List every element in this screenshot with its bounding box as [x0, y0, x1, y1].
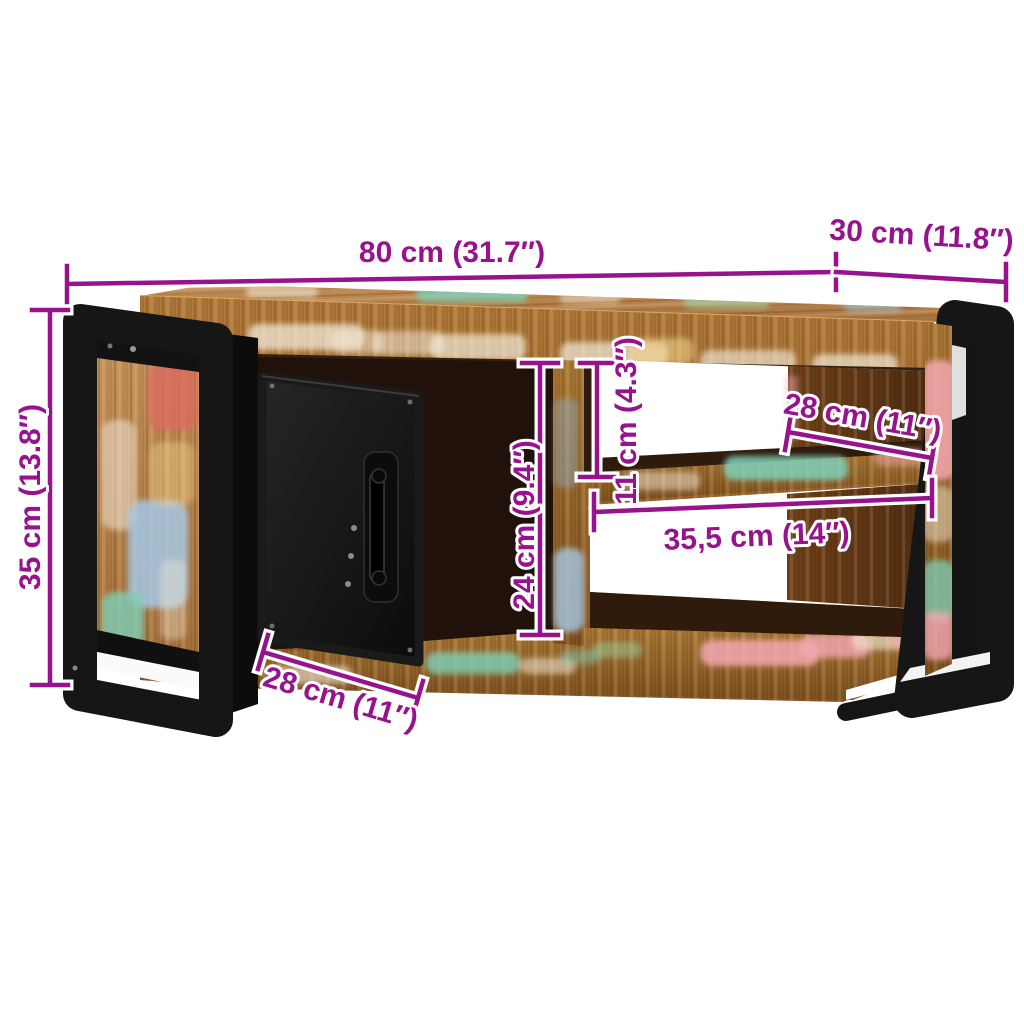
door-handle — [364, 452, 398, 602]
left-frame-panel — [97, 356, 199, 652]
dim-overall-width-label: 80 cm (31.7″) — [359, 236, 545, 269]
tv-stand-diagram-svg: 80 cm (31.7″) 30 cm (11.8″) 35 cm (13.8″… — [0, 0, 1024, 1024]
left-frame — [73, 321, 259, 720]
dim-overall-height-label: 35 cm (13.8″) — [14, 404, 47, 590]
dim-upper-compartment-height-label: 11 cm (4.3″) — [610, 337, 643, 505]
dim-door-opening-height-label: 24 cm (9.4″) — [508, 440, 541, 609]
product-diagram: 80 cm (31.7″) 30 cm (11.8″) 35 cm (13.8″… — [0, 0, 1024, 1024]
door — [262, 376, 419, 662]
